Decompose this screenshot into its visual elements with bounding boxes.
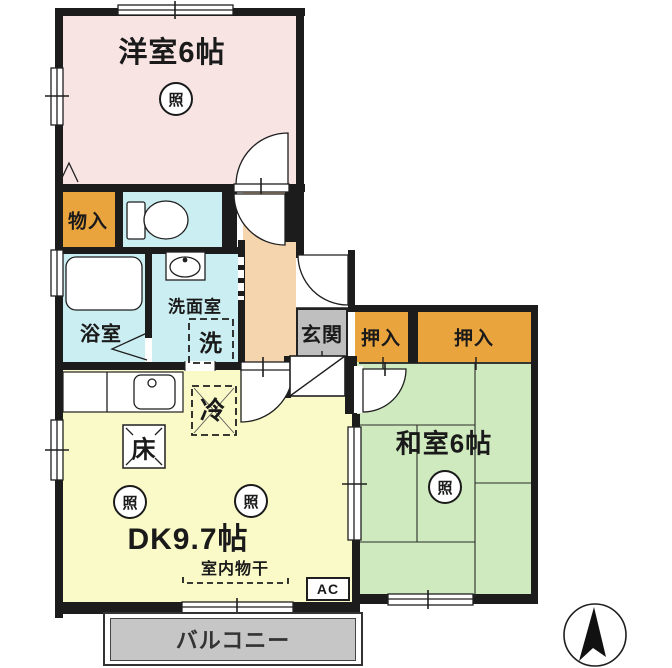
ac-label: AC — [317, 581, 339, 597]
balcony-label: バルコニー — [176, 623, 291, 655]
door-toilet — [234, 194, 285, 245]
washroom-sink — [166, 252, 205, 280]
indoor-drying-label: 室内物干 — [201, 555, 269, 579]
refrigerator-label: 冷 — [200, 391, 226, 427]
compass-icon — [564, 604, 626, 666]
window-left-western — [45, 68, 69, 125]
storage-label: 物入 — [68, 207, 108, 234]
floor-plan: 洋室6帖 照 物入 浴室 洗面室 洗 玄関 押入 押入 和室6帖 照 冷 床 照… — [0, 0, 672, 668]
light-symbol-japanese: 照 — [428, 470, 462, 504]
bath-label: 浴室 — [80, 318, 122, 347]
closet-1-label: 押入 — [361, 324, 401, 351]
window-dk-japanese — [342, 427, 367, 540]
washroom-label: 洗面室 — [168, 293, 222, 318]
door-western-room — [234, 133, 289, 198]
kitchen-counter — [63, 372, 183, 412]
window-bottom-japanese — [388, 590, 473, 609]
closet-2-label: 押入 — [454, 324, 494, 351]
toilet-fixture — [127, 201, 188, 239]
washer-label: 洗 — [199, 324, 223, 358]
entrance-label: 玄関 — [301, 319, 343, 348]
light-symbol-dk-2: 照 — [234, 484, 268, 518]
japanese-door-threshold — [354, 366, 363, 413]
window-left-dk — [45, 420, 69, 480]
post-mark — [60, 163, 78, 182]
door-entrance-hall — [298, 255, 348, 305]
door-japanese-room — [363, 362, 406, 412]
window-left-bath — [51, 250, 63, 296]
floor-alcove-label: 床 — [132, 430, 157, 465]
dk-label: DK9.7帖 — [127, 514, 248, 558]
window-top-western — [118, 1, 233, 19]
front-door — [290, 356, 345, 396]
bathtub — [66, 257, 142, 310]
japanese-room-label: 和室6帖 — [396, 424, 492, 461]
western-room-label: 洋室6帖 — [118, 29, 225, 71]
light-symbol-western: 照 — [159, 82, 193, 116]
door-corridor-dk — [241, 357, 294, 422]
